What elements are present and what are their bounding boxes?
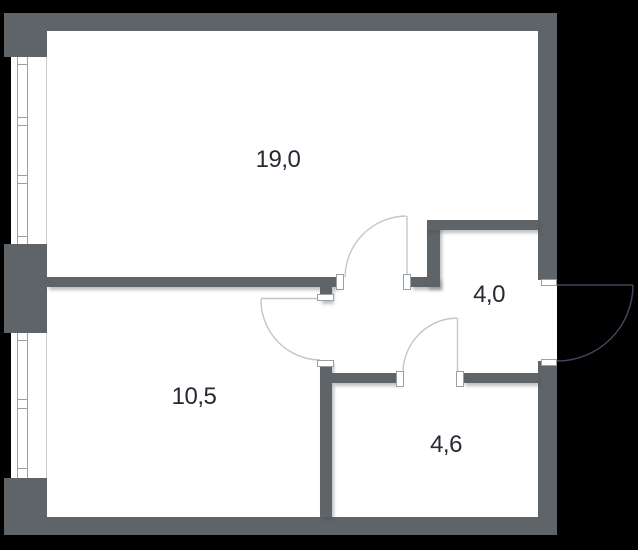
entrance-door-swing (557, 285, 633, 361)
window-2-frame-lines (18, 333, 47, 478)
wall-hall-10-lower (320, 360, 332, 517)
wall-right-lower (538, 361, 557, 517)
jamb-door19-left (336, 274, 344, 290)
room-label-19-0: 19,0 (256, 146, 301, 174)
wall-pier-left-bottom (4, 478, 47, 535)
wall-4-6-top-left (332, 373, 398, 383)
wall-bottom (4, 517, 557, 535)
room-label-4-6: 4,6 (430, 431, 462, 459)
wall-notch-vertical (427, 220, 440, 287)
door-swing-room-19 (345, 216, 407, 278)
wall-divider-19-10 (47, 277, 338, 287)
floor-plan: 19,0 10,5 4,0 4,6 (0, 0, 638, 550)
window-1-frame-lines (18, 57, 47, 244)
jamb-door10-bottom (317, 360, 334, 367)
jamb-door46-left (396, 371, 404, 387)
door-swing-room-10 (261, 299, 321, 361)
door-swing-room-4-6 (403, 318, 458, 373)
jamb-door46-right (456, 371, 464, 387)
wall-pier-left-middle (4, 244, 47, 333)
wall-pier-left-top (4, 13, 47, 57)
jamb-door19-right (403, 274, 411, 290)
wall-notch-horizontal (427, 220, 538, 230)
room-label-4-0: 4,0 (473, 281, 505, 309)
wall-4-6-top-right (463, 373, 538, 383)
jamb-entrance-top (541, 279, 557, 286)
wall-right-upper (538, 31, 557, 280)
jamb-entrance-bottom (541, 359, 557, 366)
wall-top (4, 13, 557, 31)
jamb-door10-top (317, 294, 334, 301)
room-label-10-5: 10,5 (172, 383, 217, 411)
